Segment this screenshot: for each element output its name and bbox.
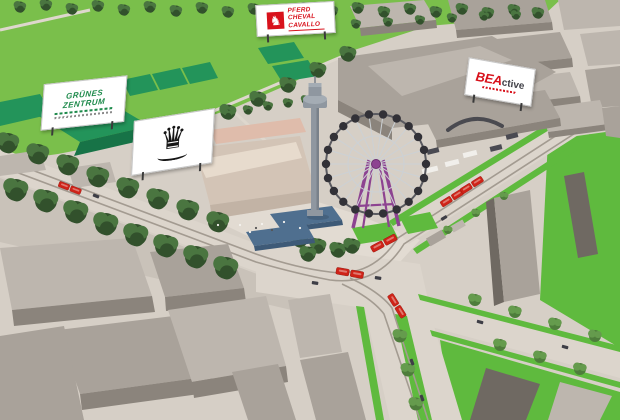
city-block: [558, 0, 620, 30]
tower-base: [307, 210, 323, 216]
billboard-text-block: PFERD CHEVAL CAVALLO: [287, 6, 324, 32]
brand-text-bold: BEA: [475, 69, 503, 89]
tower-shaft-shade: [317, 106, 320, 212]
wheel-hub: [372, 160, 381, 169]
billboard-gruenes-zentrum: GRÜNES ZENTRUM: [41, 75, 128, 130]
tower-cabin-top: [309, 83, 322, 87]
horse-head-icon: ♞: [267, 11, 285, 29]
aerial-3d-visualization: GRÜNES ZENTRUM ♞ PFERD CHEVAL CAVALLO ♛ …: [0, 0, 620, 420]
sign-post: [323, 31, 325, 39]
billboard-pferd-cheval-cavallo: ♞ PFERD CHEVAL CAVALLO: [255, 1, 336, 37]
sign-post: [267, 34, 269, 42]
scene-canvas: [0, 0, 620, 420]
